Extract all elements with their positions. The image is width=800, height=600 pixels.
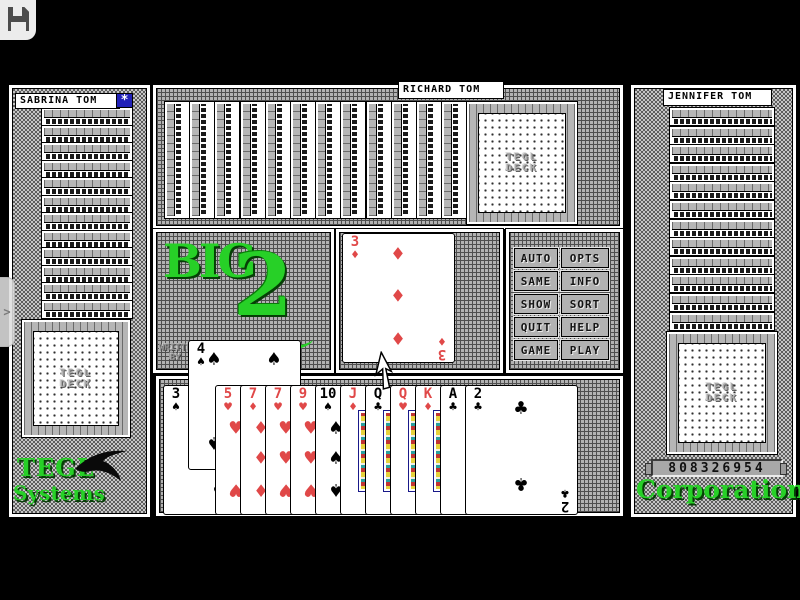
face-down-card <box>265 101 291 219</box>
face-down-card <box>669 312 775 331</box>
face-down-card <box>41 212 133 231</box>
face-down-card <box>669 126 775 145</box>
face-down-card <box>240 101 266 219</box>
face-down-card <box>366 101 392 219</box>
bird-silhouette-icon <box>73 447 129 483</box>
face-down-card <box>41 142 133 161</box>
button-help[interactable]: HELP <box>561 317 609 337</box>
panel-player-top: TEGL DECK <box>152 84 624 230</box>
face-down-card <box>315 101 341 219</box>
player-name-left: SABRINA TOM <box>15 93 120 109</box>
face-down-card <box>669 293 775 312</box>
card-back: TEGL DECK <box>21 319 131 438</box>
deck-label: TEGL DECK <box>506 152 538 174</box>
panel-player-left: SABRINA TOM * TEGL DECK TEGL Systems <box>8 84 151 518</box>
face-down-card <box>41 265 133 284</box>
card-back: TEGL DECK <box>666 331 778 455</box>
panel-actions: AUTOOPTSSAMEINFOSHOWSORTQUITHELPGAMEPLAY <box>505 228 624 374</box>
logo-numeral: 2 <box>233 243 293 329</box>
button-show[interactable]: SHOW <box>514 294 558 314</box>
face-down-card <box>164 101 190 219</box>
face-down-card <box>41 195 133 214</box>
played-card-3-diamonds: 3♦3♦♦♦♦ <box>342 233 455 363</box>
panel-player-right: JENNIFER TOM TEGL DECK 808326954 Corpora… <box>630 84 797 518</box>
face-down-card <box>669 274 775 293</box>
face-down-card <box>41 282 133 301</box>
brand-company-right: Corporation <box>636 475 800 504</box>
save-button[interactable] <box>0 0 36 40</box>
face-down-card <box>41 230 133 249</box>
sidebar-flyout-handle[interactable]: > <box>0 277 15 347</box>
button-sort[interactable]: SORT <box>561 294 609 314</box>
floppy-disk-icon <box>8 7 29 31</box>
face-down-card <box>290 101 316 219</box>
face-down-card <box>41 247 133 266</box>
mouse-cursor-up-arrow <box>371 350 397 394</box>
button-quit[interactable]: QUIT <box>514 317 558 337</box>
deck-label: TEGL DECK <box>706 382 738 404</box>
face-down-card <box>669 219 775 238</box>
face-down-card <box>340 101 366 219</box>
face-down-card <box>41 300 133 319</box>
credits-text: WRITTEN BY <box>159 343 188 367</box>
button-opts[interactable]: OPTS <box>561 248 609 268</box>
button-play[interactable]: PLAY <box>561 340 609 360</box>
face-down-card <box>391 101 417 219</box>
brand-company-bottom: Systems <box>13 481 105 505</box>
face-down-card <box>41 125 133 144</box>
game-screen: SABRINA TOM * TEGL DECK TEGL Systems TEG… <box>0 0 800 600</box>
button-same[interactable]: SAME <box>514 271 558 291</box>
button-game[interactable]: GAME <box>514 340 558 360</box>
face-down-card <box>669 107 775 126</box>
face-down-card <box>669 237 775 256</box>
hand-card-2-clubs[interactable]: 2♣2♣♣♣ <box>465 385 578 515</box>
chevron-right-icon: > <box>3 305 10 319</box>
face-down-card <box>669 163 775 182</box>
face-down-card <box>41 107 133 126</box>
face-down-card <box>214 101 240 219</box>
deck-label: TEGL DECK <box>60 368 92 390</box>
card-back: TEGL DECK <box>466 101 578 225</box>
face-down-card <box>189 101 215 219</box>
face-down-card <box>416 101 442 219</box>
face-down-card <box>669 144 775 163</box>
turn-badge-icon[interactable]: * <box>116 93 133 108</box>
face-down-card <box>669 181 775 200</box>
button-info[interactable]: INFO <box>561 271 609 291</box>
button-auto[interactable]: AUTO <box>514 248 558 268</box>
serial-end-cap <box>645 463 652 475</box>
player-name-top: RICHARD TOM <box>398 81 504 99</box>
serial-end-cap <box>780 463 787 475</box>
face-down-card <box>669 200 775 219</box>
player-name-right: JENNIFER TOM <box>663 89 772 106</box>
face-down-card <box>41 160 133 179</box>
face-down-card <box>441 101 467 219</box>
face-down-card <box>41 177 133 196</box>
face-down-card <box>669 256 775 275</box>
